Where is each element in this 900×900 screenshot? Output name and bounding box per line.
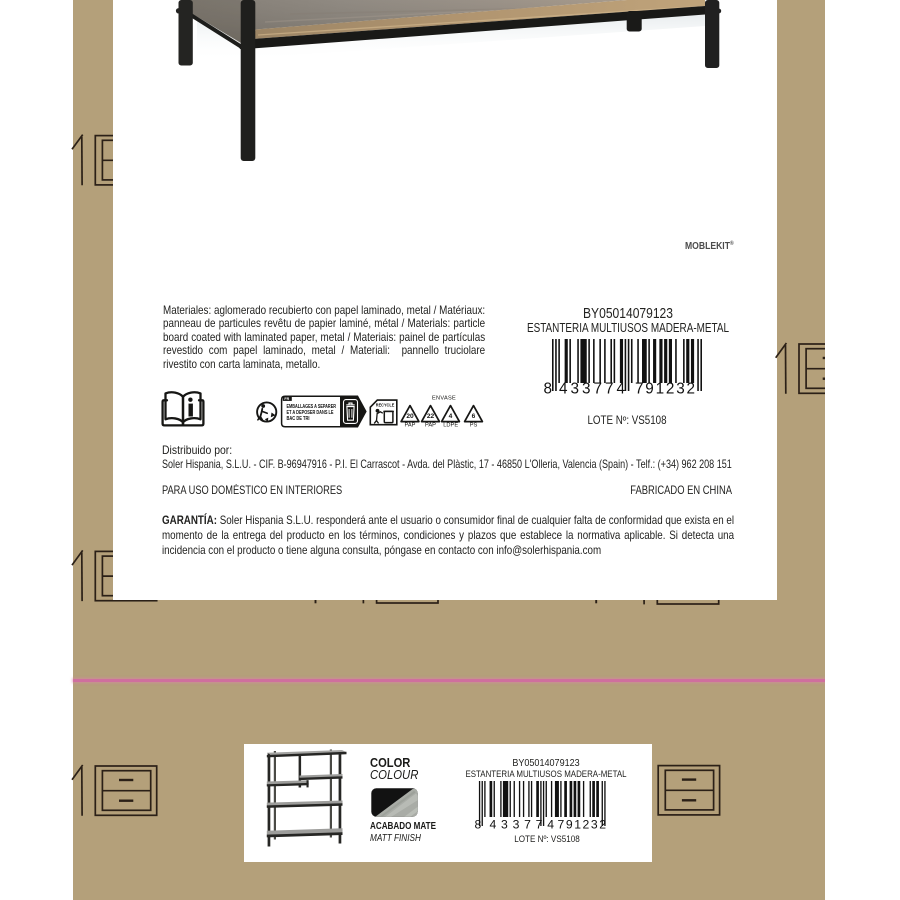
svg-text:791232: 791232: [558, 818, 607, 832]
svg-text:433774: 433774: [490, 818, 555, 832]
svg-text:791232: 791232: [635, 381, 695, 398]
svg-text:433774: 433774: [559, 381, 625, 398]
svg-text:8: 8: [475, 818, 482, 832]
svg-text:8: 8: [544, 381, 553, 398]
